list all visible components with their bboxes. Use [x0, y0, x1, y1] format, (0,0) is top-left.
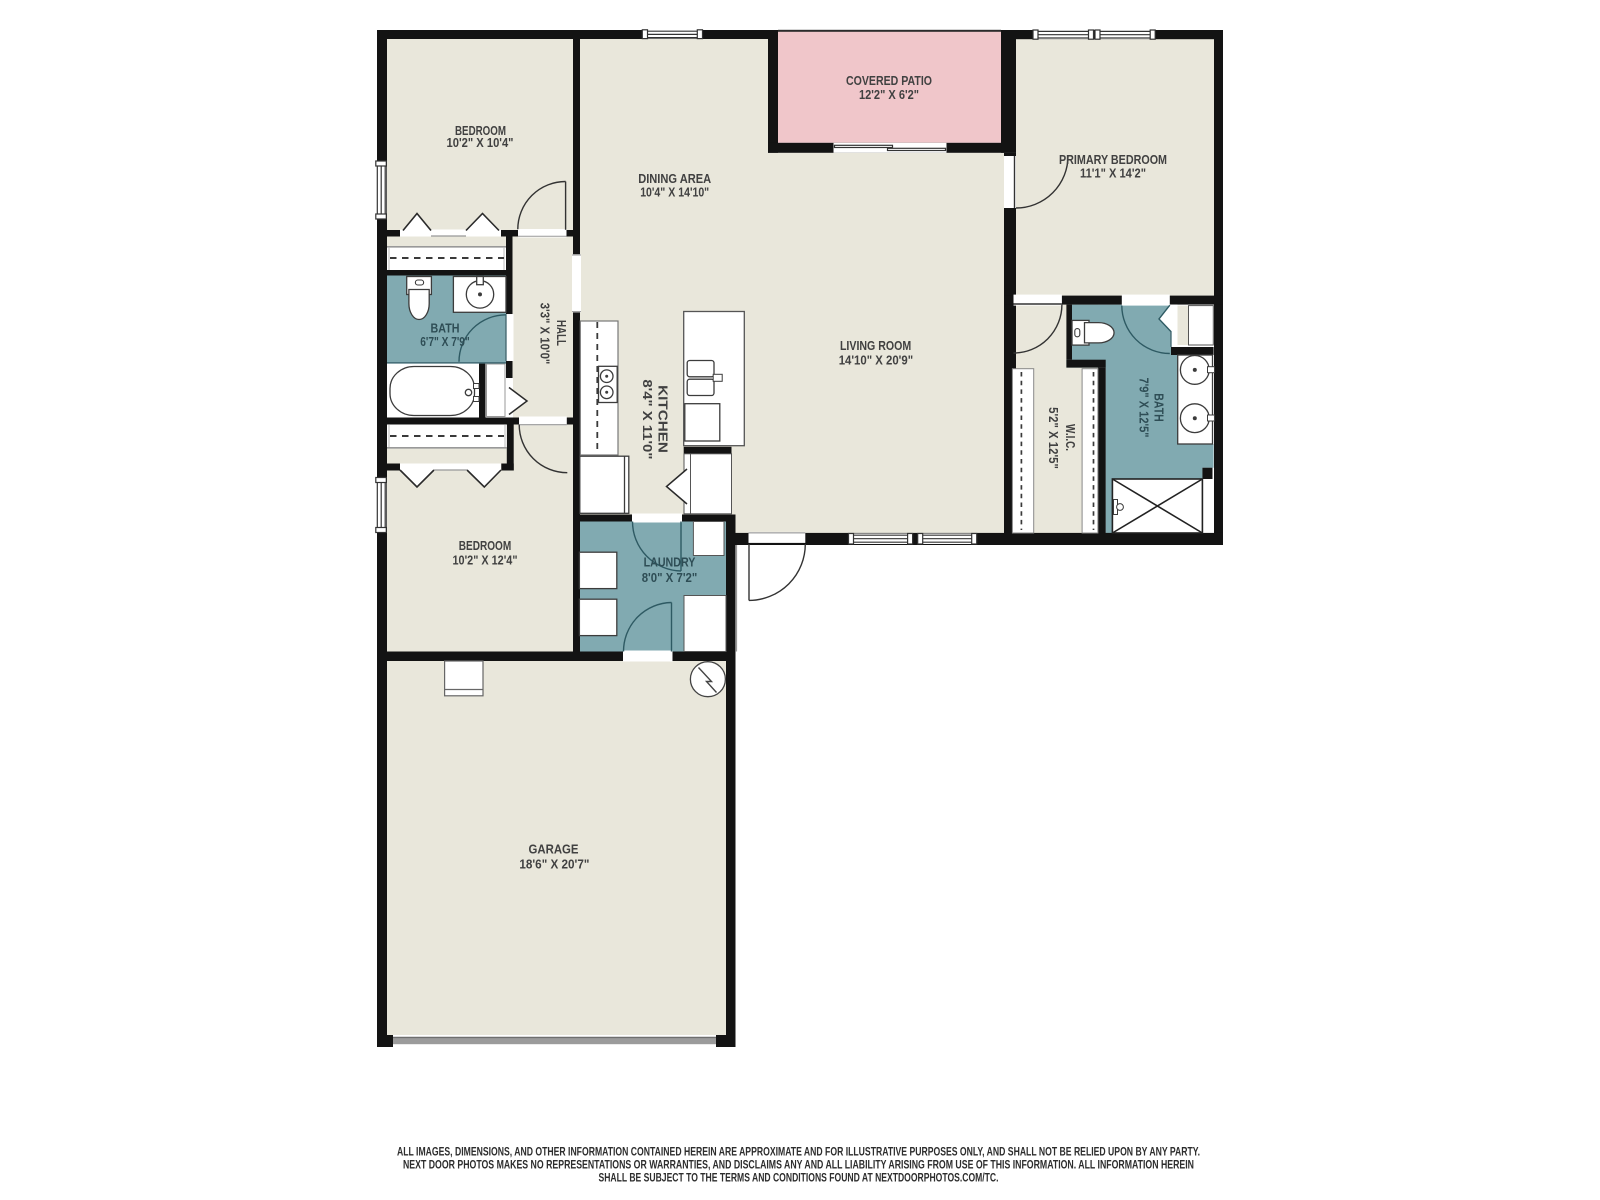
svg-text:GARAGE: GARAGE: [529, 841, 579, 856]
svg-text:11'1" X 14'2": 11'1" X 14'2": [1080, 166, 1146, 180]
svg-text:BATH: BATH: [431, 320, 460, 335]
svg-text:KITCHEN: KITCHEN: [656, 385, 671, 453]
svg-text:5'2" X 12'5": 5'2" X 12'5": [1046, 407, 1060, 469]
svg-text:HALL: HALL: [554, 320, 569, 346]
svg-text:10'2" X 10'4": 10'2" X 10'4": [447, 136, 514, 150]
svg-text:PRIMARY BEDROOM: PRIMARY BEDROOM: [1059, 152, 1167, 167]
svg-text:10'4" X 14'10": 10'4" X 14'10": [640, 185, 709, 199]
svg-text:ALL IMAGES, DIMENSIONS, AND OT: ALL IMAGES, DIMENSIONS, AND OTHER INFORM…: [397, 1147, 1200, 1159]
svg-text:LAUNDRY: LAUNDRY: [644, 555, 696, 570]
svg-text:8'0" X 7'2": 8'0" X 7'2": [642, 571, 698, 585]
svg-text:SHALL BE SUBJECT TO THE TERMS: SHALL BE SUBJECT TO THE TERMS AND CONDIT…: [599, 1173, 999, 1185]
svg-text:BEDROOM: BEDROOM: [459, 538, 512, 553]
svg-text:6'7" X 7'9": 6'7" X 7'9": [420, 335, 470, 349]
svg-text:3'3" X 10'0": 3'3" X 10'0": [538, 303, 552, 365]
svg-text:COVERED PATIO: COVERED PATIO: [846, 73, 932, 88]
svg-text:10'2" X 12'4": 10'2" X 12'4": [453, 554, 518, 568]
svg-text:14'10" X 20'9": 14'10" X 20'9": [839, 354, 913, 368]
svg-text:18'6" X 20'7": 18'6" X 20'7": [519, 858, 589, 872]
svg-text:DINING AREA: DINING AREA: [638, 171, 712, 186]
svg-text:LIVING ROOM: LIVING ROOM: [840, 338, 911, 353]
svg-text:7'9" X 12'5": 7'9" X 12'5": [1137, 378, 1151, 438]
svg-text:W.I.C.: W.I.C.: [1063, 424, 1078, 451]
svg-text:12'2" X 6'2": 12'2" X 6'2": [859, 88, 919, 102]
svg-text:BATH: BATH: [1152, 393, 1167, 421]
svg-text:NEXT DOOR PHOTOS MAKES NO REPR: NEXT DOOR PHOTOS MAKES NO REPRESENTATION…: [403, 1160, 1194, 1172]
svg-text:8'4" X 11'0": 8'4" X 11'0": [640, 379, 654, 459]
